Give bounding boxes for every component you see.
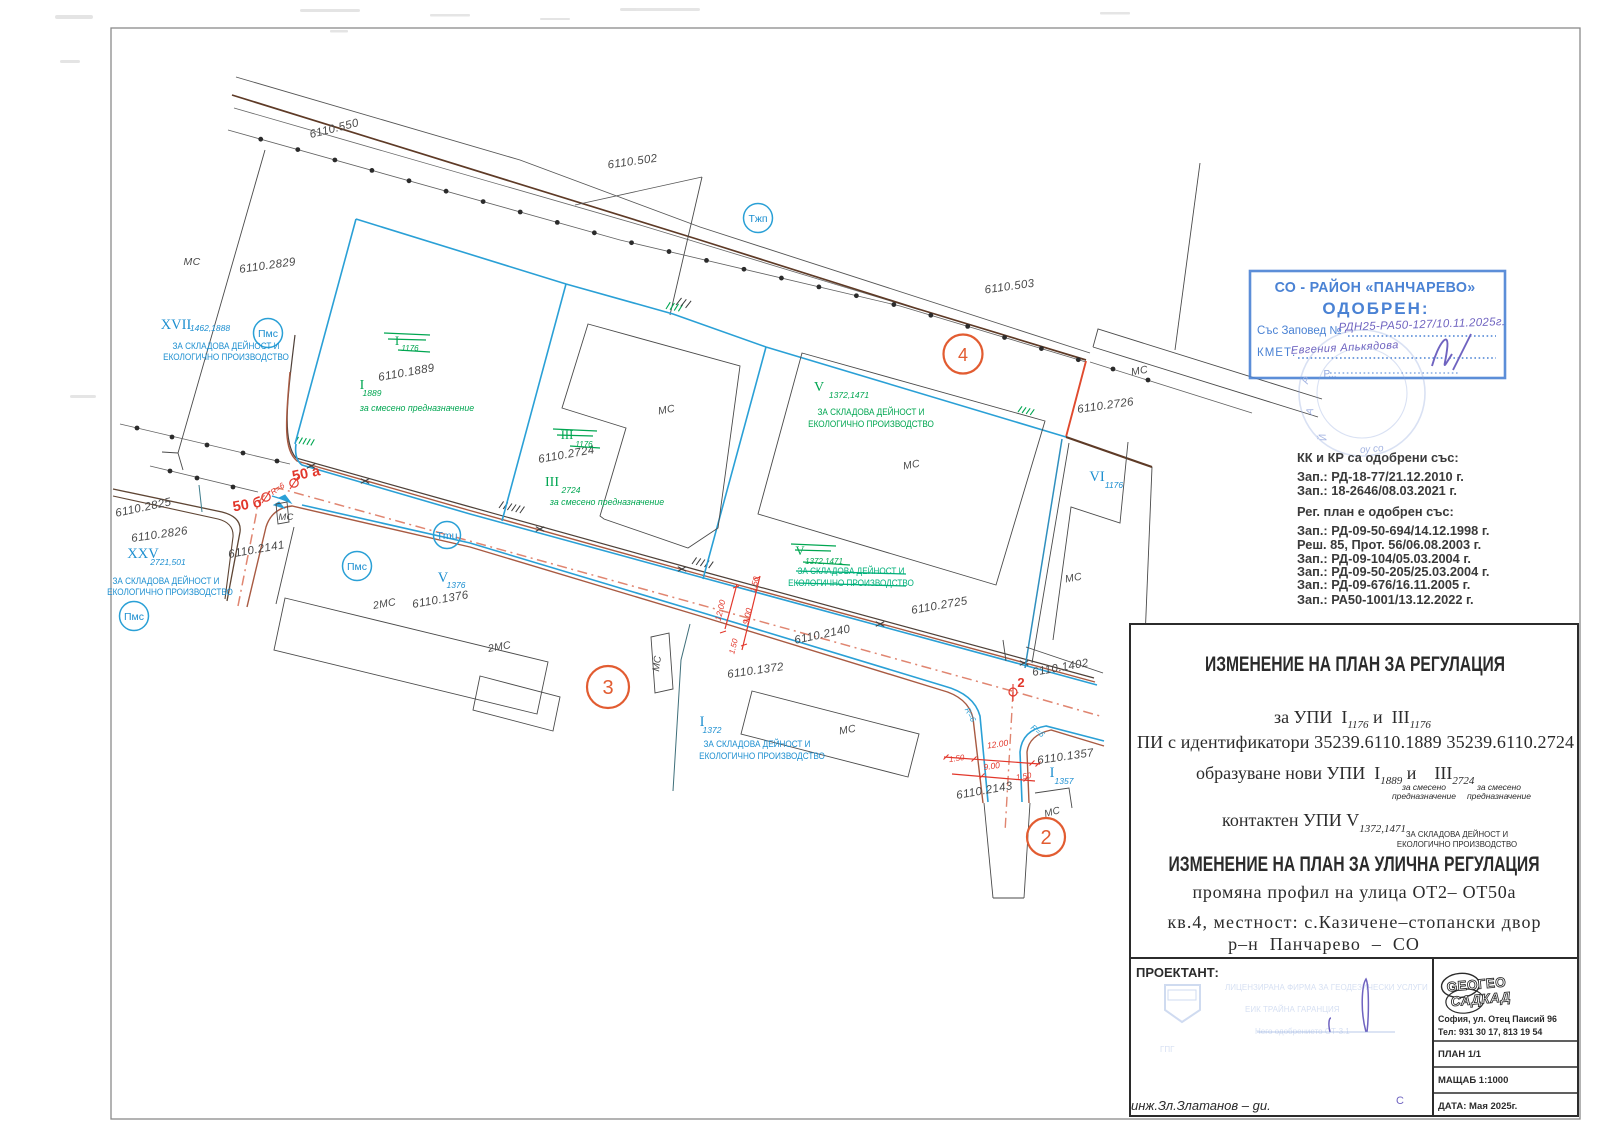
svg-text:СО - РАЙОН «ПАНЧАРЕВО»: СО - РАЙОН «ПАНЧАРЕВО» xyxy=(1275,278,1476,296)
svg-text:ЗА СКЛАДОВА ДЕЙНОСТ И: ЗА СКЛАДОВА ДЕЙНОСТ И xyxy=(112,575,219,586)
svg-text:Тел: 931 30 17, 813 19 5: Тел: 931 30 17, 813 19 54 xyxy=(1438,1027,1542,1037)
svg-text:ЕКОЛОГИЧНО ПРОИЗВОДСТВО: ЕКОЛОГИЧНО ПРОИЗВОДСТВО xyxy=(163,352,289,362)
svg-text:Със Заповед №: Със Заповед № xyxy=(1257,325,1342,337)
svg-text:за смесено предназначение: за смесено предназначение xyxy=(549,497,664,507)
svg-text:МАЩАБ 1:1000: МАЩАБ 1:1000 xyxy=(1438,1075,1508,1086)
svg-text:Рег. план е одобрен със:: Рег. план е одобрен със: xyxy=(1297,504,1454,519)
svg-text:ГПГ: ГПГ xyxy=(1160,1045,1175,1054)
svg-text:Пмс: Пмс xyxy=(258,328,278,340)
svg-text:1889: 1889 xyxy=(363,388,382,398)
svg-text:С: С xyxy=(1396,1095,1404,1107)
svg-text:Реш. 85, Прот. 56/06.08.2003 г: Реш. 85, Прот. 56/06.08.2003 г. xyxy=(1297,537,1481,552)
svg-text:Тmu: Тmu xyxy=(437,530,458,542)
svg-text:Зап.: РД-18-77/21.12.2010 г.: Зап.: РД-18-77/21.12.2010 г. xyxy=(1297,469,1464,484)
svg-text:Зап.: РД-09-676/16.11.2005 г.: Зап.: РД-09-676/16.11.2005 г. xyxy=(1297,577,1470,592)
svg-text:ЕКОЛОГИЧНО ПРОИЗВОДСТВО: ЕКОЛОГИЧНО ПРОИЗВОДСТВО xyxy=(808,419,934,429)
svg-text:V: V xyxy=(795,544,804,558)
svg-text:V: V xyxy=(814,380,824,395)
svg-text:ПРОЕКТАНТ:: ПРОЕКТАНТ: xyxy=(1136,965,1219,980)
svg-text:р–н Панчарево – СО: р–н Панчарево – СО xyxy=(1228,934,1420,954)
svg-text:ЕКОЛОГИЧНО ПРОИЗВОДСТВО: ЕКОЛОГИЧНО ПРОИЗВОДСТВО xyxy=(1397,840,1517,849)
svg-text:ОДОБРЕН:: ОДОБРЕН: xyxy=(1322,299,1429,318)
svg-text:МС: МС xyxy=(184,256,201,268)
svg-text:2: 2 xyxy=(1040,827,1051,849)
svg-text:2724: 2724 xyxy=(561,485,581,495)
svg-text:2: 2 xyxy=(1017,675,1024,690)
svg-text:1372: 1372 xyxy=(703,725,722,735)
svg-text:ЗА СКЛАДОВА ДЕЙНОСТ И: ЗА СКЛАДОВА ДЕЙНОСТ И xyxy=(1406,828,1508,839)
svg-text:I: I xyxy=(395,333,399,348)
svg-text:Тжп: Тжп xyxy=(748,213,767,225)
svg-text:промяна профил на улица ОТ2– О: промяна профил на улица ОТ2– ОТ50а xyxy=(1193,882,1516,902)
svg-text:София, ул. Отец Паисий 96: София, ул. Отец Паисий 96 xyxy=(1438,1014,1557,1024)
svg-text:МС: МС xyxy=(278,512,293,523)
svg-text:ПИ с идентификатори 35239.6110: ПИ с идентификатори 35239.6110.1889 3523… xyxy=(1137,732,1574,752)
svg-text:Пмс: Пмс xyxy=(347,561,367,573)
svg-text:III: III xyxy=(545,475,559,490)
svg-text:КК и КР са одобрени със:: КК и КР са одобрени със: xyxy=(1297,450,1459,465)
svg-text:за смесено предназначение: за смесено предназначение xyxy=(359,403,474,413)
svg-text:ЗА СКЛАДОВА ДЕЙНОСТ И: ЗА СКЛАДОВА ДЕЙНОСТ И xyxy=(797,565,904,576)
svg-text:ДАТА: Мая 2025г.: ДАТА: Мая 2025г. xyxy=(1438,1101,1517,1112)
svg-text:Зап.: РД-09-50-694/14.12.1998: Зап.: РД-09-50-694/14.12.1998 г. xyxy=(1297,523,1489,538)
svg-text:1357: 1357 xyxy=(1055,776,1074,786)
svg-text:Пмс: Пмс xyxy=(124,611,144,623)
svg-text:ПЛАН 1/1: ПЛАН 1/1 xyxy=(1438,1049,1482,1060)
svg-text:инж.Зл.Златанов – gu.: инж.Зл.Златанов – gu. xyxy=(1131,1098,1271,1113)
svg-text:2721,501: 2721,501 xyxy=(149,557,186,567)
svg-text:Р...: Р... xyxy=(1323,369,1336,380)
svg-text:ЕИК ТРАЙНА ГАРАНЦИЯ: ЕИК ТРАЙНА ГАРАНЦИЯ xyxy=(1245,1005,1340,1014)
svg-text:ЗА СКЛАДОВА ДЕЙНОСТ И: ЗА СКЛАДОВА ДЕЙНОСТ И xyxy=(817,406,924,417)
svg-text:МС: МС xyxy=(651,655,664,673)
svg-text:Зап.: 18-2646/08.03.2021 г.: Зап.: 18-2646/08.03.2021 г. xyxy=(1297,483,1457,498)
svg-text:Зап.: РА50-1001/13.12.2022 г.: Зап.: РА50-1001/13.12.2022 г. xyxy=(1297,592,1474,607)
svg-text:ИЗМЕНЕНИЕ НА ПЛАН ЗА УЛИЧНА РЕ: ИЗМЕНЕНИЕ НА ПЛАН ЗА УЛИЧНА РЕГУЛАЦИЯ xyxy=(1169,853,1540,876)
svg-text:XVII: XVII xyxy=(161,317,192,333)
svg-text:ЛИЦЕНЗИРАНА ФИРМА ЗА ГЕОДЕЗИЧЕ: ЛИЦЕНЗИРАНА ФИРМА ЗА ГЕОДЕЗИЧЕСКИ УСЛУГИ xyxy=(1225,983,1428,992)
svg-text:4: 4 xyxy=(958,345,968,365)
svg-text:предназначение: предназначение xyxy=(1392,791,1456,801)
svg-text:предназначение: предназначение xyxy=(1467,791,1531,801)
svg-text:ЗА СКЛАДОВА ДЕЙНОСТ И: ЗА СКЛАДОВА ДЕЙНОСТ И xyxy=(172,340,279,351)
svg-text:3: 3 xyxy=(602,677,613,699)
svg-text:1176: 1176 xyxy=(1105,480,1124,490)
svg-text:ЗА СКЛАДОВА ДЕЙНОСТ И: ЗА СКЛАДОВА ДЕЙНОСТ И xyxy=(703,738,810,749)
svg-text:ЕКОЛОГИЧНО ПРОИЗВОДСТВО: ЕКОЛОГИЧНО ПРОИЗВОДСТВО xyxy=(107,587,233,597)
svg-text:VI: VI xyxy=(1089,469,1104,485)
svg-text:1376: 1376 xyxy=(447,580,466,590)
svg-text:1462,1888: 1462,1888 xyxy=(190,323,230,333)
svg-text:ЕКОЛОГИЧНО ПРОИЗВОДСТВО: ЕКОЛОГИЧНО ПРОИЗВОДСТВО xyxy=(699,751,825,761)
svg-text:1372,1471: 1372,1471 xyxy=(829,390,869,400)
svg-text:ИЗМЕНЕНИЕ НА ПЛАН ЗА РЕГУЛАЦИЯ: ИЗМЕНЕНИЕ НА ПЛАН ЗА РЕГУЛАЦИЯ xyxy=(1205,653,1505,676)
